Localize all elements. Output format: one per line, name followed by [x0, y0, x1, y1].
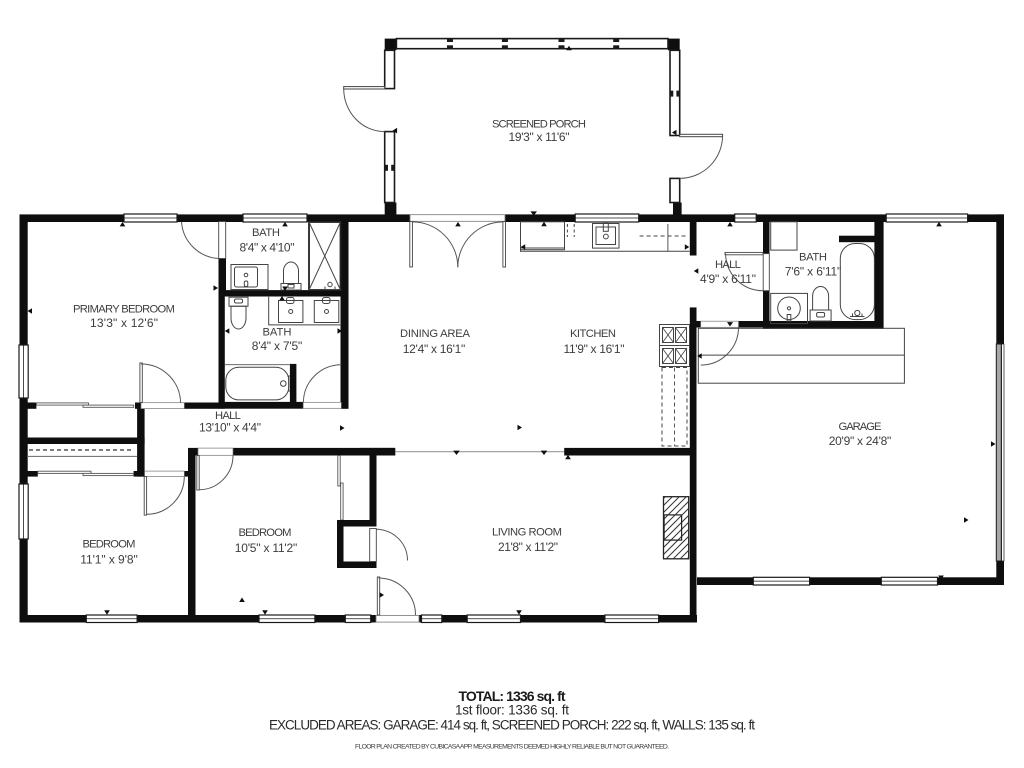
svg-text:21'8" x 11'2": 21'8" x 11'2": [498, 540, 558, 554]
svg-text:BATH: BATH: [263, 327, 292, 339]
svg-text:11'9" x 16'1": 11'9" x 16'1": [564, 342, 625, 356]
svg-text:8'4" x 4'10": 8'4" x 4'10": [240, 241, 295, 255]
svg-text:19'3" x 11'6": 19'3" x 11'6": [509, 130, 570, 144]
svg-text:EXCLUDED AREAS: GARAGE: 414 sq: EXCLUDED AREAS: GARAGE: 414 sq. ft, SCRE…: [269, 718, 755, 733]
svg-text:DINING AREA: DINING AREA: [400, 328, 470, 340]
svg-text:12'4" x 16'1": 12'4" x 16'1": [403, 342, 466, 356]
svg-text:SCREENED PORCH: SCREENED PORCH: [492, 119, 586, 131]
svg-text:BATH: BATH: [799, 252, 827, 264]
svg-text:11'1" x 9'8": 11'1" x 9'8": [80, 553, 138, 567]
svg-text:13'3" x 12'6": 13'3" x 12'6": [90, 316, 158, 330]
svg-text:1st floor: 1336 sq. ft: 1st floor: 1336 sq. ft: [455, 703, 569, 718]
svg-text:HALL: HALL: [715, 259, 741, 271]
svg-text:8'4" x 7'5": 8'4" x 7'5": [252, 339, 303, 353]
svg-text:PRIMARY BEDROOM: PRIMARY BEDROOM: [73, 304, 175, 316]
svg-text:BEDROOM: BEDROOM: [239, 527, 292, 539]
svg-text:BEDROOM: BEDROOM: [83, 539, 136, 551]
svg-text:BATH: BATH: [252, 227, 280, 239]
svg-text:LIVING ROOM: LIVING ROOM: [492, 527, 562, 539]
svg-text:7'6" x 6'11": 7'6" x 6'11": [785, 265, 842, 279]
svg-text:10'5" x 11'2": 10'5" x 11'2": [235, 541, 298, 555]
svg-text:GARAGE: GARAGE: [839, 421, 882, 433]
svg-text:KITCHEN: KITCHEN: [570, 328, 616, 340]
svg-text:FLOOR PLAN CREATED BY CUBICASA: FLOOR PLAN CREATED BY CUBICASA APP. MEAS…: [355, 744, 669, 751]
svg-text:20'9" x 24'8": 20'9" x 24'8": [829, 434, 892, 448]
svg-text:4'9" x 6'11": 4'9" x 6'11": [700, 272, 756, 286]
svg-text:13'10" x 4'4": 13'10" x 4'4": [199, 421, 261, 435]
